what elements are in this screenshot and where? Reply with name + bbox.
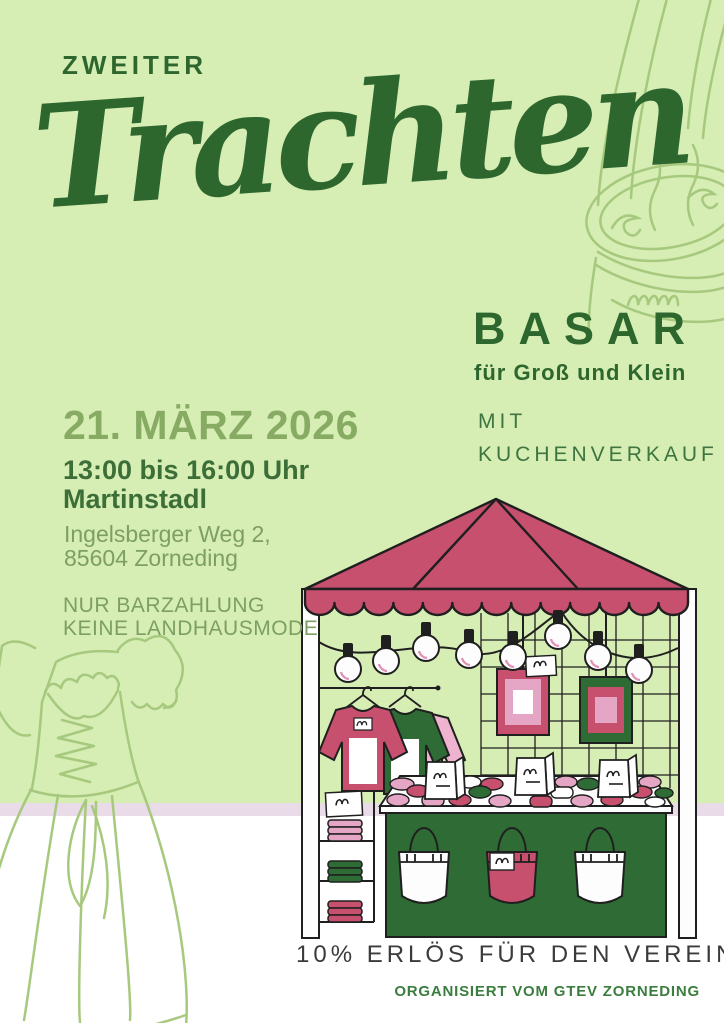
event-time-venue: 13:00 bis 16:00 Uhr Martinstadl bbox=[63, 456, 309, 514]
price-card bbox=[598, 755, 638, 797]
price-tag bbox=[325, 791, 362, 817]
event-address-line2: 85604 Zorneding bbox=[64, 546, 271, 570]
side-note: MIT KUCHENVERKAUF bbox=[478, 405, 718, 471]
light-bulbs bbox=[335, 610, 652, 683]
hanger bbox=[347, 687, 379, 707]
title-caps: BASAR bbox=[473, 303, 698, 355]
hanger bbox=[389, 687, 421, 707]
event-notice-line2: KEINE LANDHAUSMODE bbox=[63, 617, 318, 640]
side-note-line1: MIT bbox=[478, 405, 718, 438]
event-notice: NUR BARZAHLUNG KEINE LANDHAUSMODE bbox=[63, 594, 318, 640]
event-notice-line1: NUR BARZAHLUNG bbox=[63, 594, 318, 617]
price-card bbox=[515, 753, 555, 795]
price-card bbox=[425, 757, 465, 799]
event-time: 13:00 bis 16:00 Uhr bbox=[63, 456, 309, 485]
poster-page: ZWEITER Trachten BASAR für Groß und Klei… bbox=[0, 0, 724, 1023]
event-address: Ingelsberger Weg 2, 85604 Zorneding bbox=[64, 522, 271, 570]
side-note-line2: KUCHENVERKAUF bbox=[478, 438, 718, 471]
footer-organizer-text: ORGANISIERT VOM GTEV ZORNEDING bbox=[296, 983, 700, 1000]
event-venue: Martinstadl bbox=[63, 485, 309, 514]
footer-main-text: 10% ERLÖS FÜR DEN VEREIN bbox=[296, 941, 708, 969]
event-date: 21. MÄRZ 2026 bbox=[63, 402, 359, 449]
tent-roof bbox=[305, 499, 688, 615]
market-stall-illustration bbox=[285, 485, 715, 945]
clothes-rail bbox=[319, 686, 441, 691]
tagline: für Groß und Klein bbox=[474, 360, 686, 386]
title-script: Trachten bbox=[29, 42, 692, 229]
folded-clothes-stacks bbox=[328, 820, 362, 922]
dirndl-dress-outline-icon bbox=[0, 630, 230, 1023]
event-address-line1: Ingelsberger Weg 2, bbox=[64, 522, 271, 546]
price-tag bbox=[525, 655, 556, 677]
